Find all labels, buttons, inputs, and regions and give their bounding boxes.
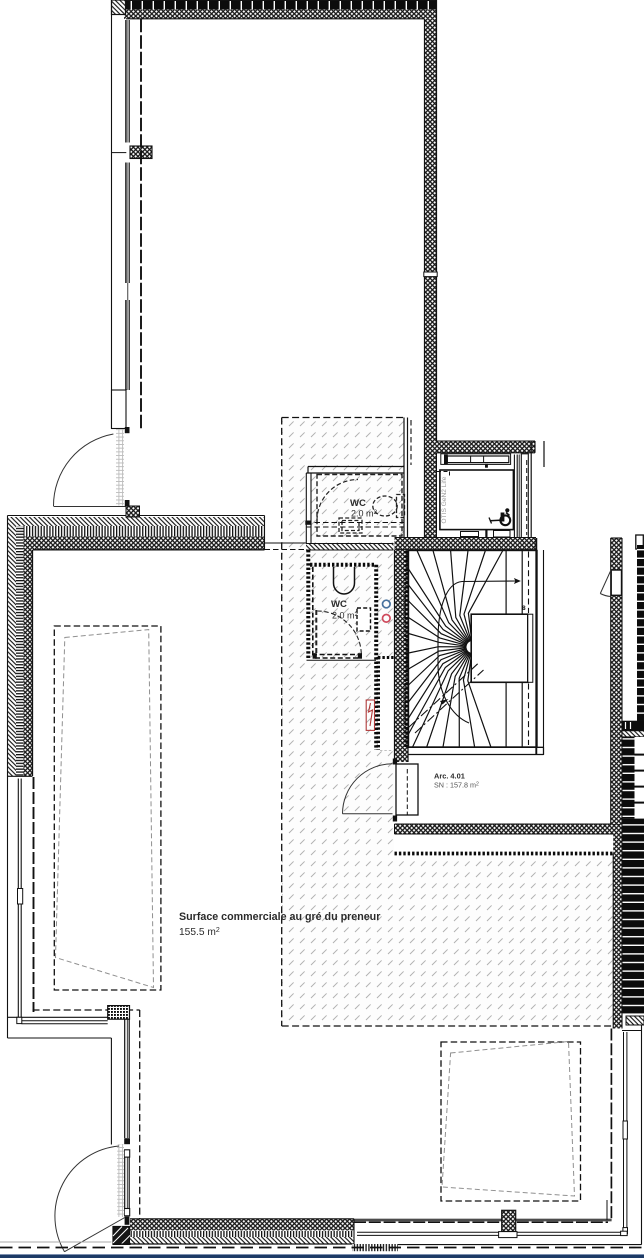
svg-text:WC: WC [350, 498, 366, 509]
svg-text:8: 8 [522, 605, 526, 612]
svg-text:Surface commerciale au gré du: Surface commerciale au gré du preneur [179, 911, 380, 923]
svg-text:Arc. 4.01: Arc. 4.01 [434, 772, 465, 781]
svg-text:OTIS GeN2 Life: OTIS GeN2 Life [441, 476, 448, 523]
svg-text:WC: WC [331, 599, 347, 610]
svg-text:SN : 157.8 m2: SN : 157.8 m2 [434, 781, 479, 790]
svg-text:155.5 m2: 155.5 m2 [179, 927, 220, 938]
